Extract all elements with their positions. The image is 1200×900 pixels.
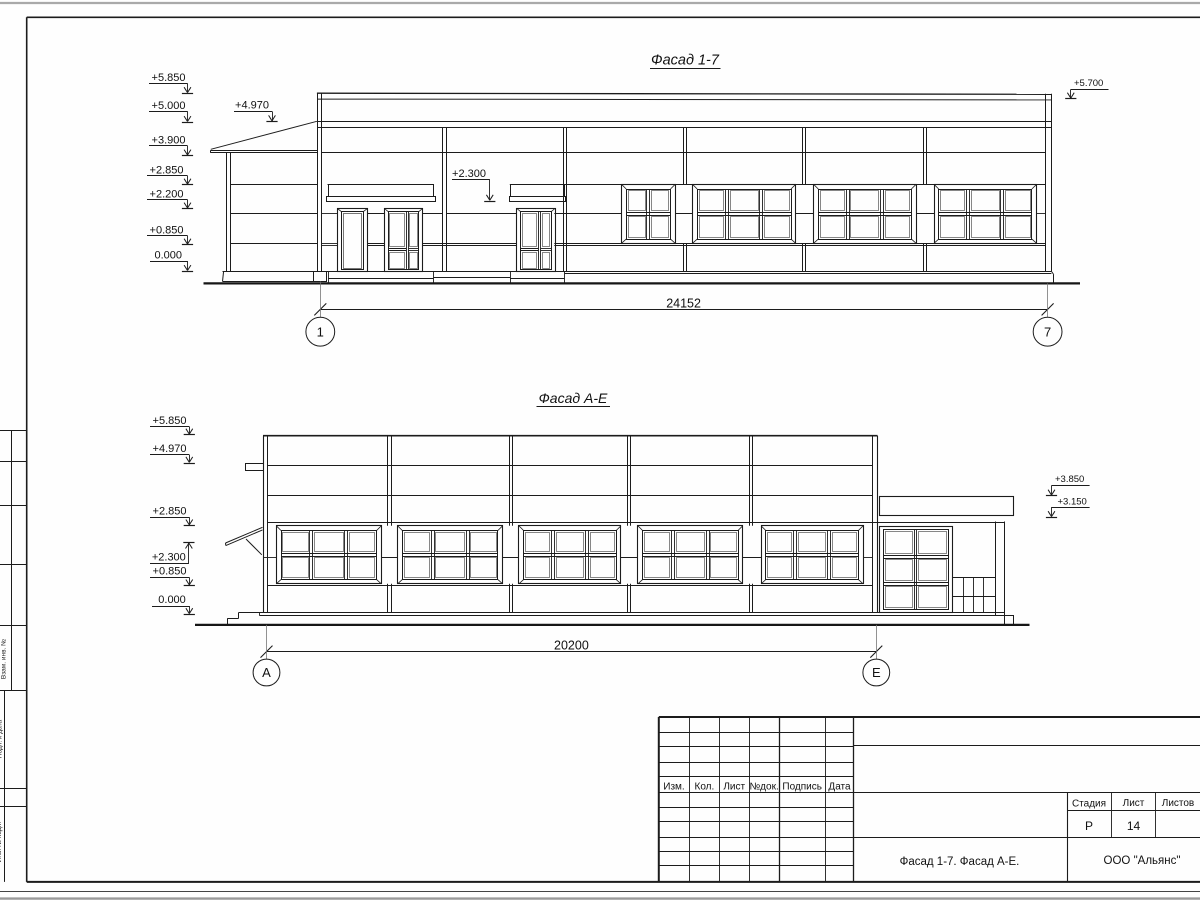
svg-text:14: 14: [1127, 819, 1141, 833]
svg-text:20200: 20200: [554, 638, 589, 652]
svg-text:Кол.: Кол.: [695, 782, 715, 793]
svg-text:Р: Р: [1085, 819, 1093, 833]
svg-text:Фасад А-Е: Фасад А-Е: [539, 390, 608, 406]
svg-text:+2.850: +2.850: [150, 164, 184, 176]
svg-text:Взам. инв. №: Взам. инв. №: [1, 639, 8, 679]
svg-text:+2.850: +2.850: [153, 505, 187, 517]
svg-text:0.000: 0.000: [158, 594, 186, 606]
svg-text:+5.700: +5.700: [1074, 78, 1103, 89]
svg-text:№док.: №док.: [749, 782, 778, 793]
svg-text:+0.850: +0.850: [153, 565, 187, 577]
svg-text:Лист: Лист: [1123, 798, 1145, 809]
svg-text:+0.850: +0.850: [150, 224, 184, 236]
svg-text:А: А: [262, 665, 271, 680]
svg-text:1: 1: [317, 324, 324, 339]
svg-text:ООО "Альянс": ООО "Альянс": [1104, 855, 1181, 867]
svg-text:+5.850: +5.850: [153, 415, 187, 427]
svg-text:Стадия: Стадия: [1072, 799, 1106, 810]
svg-text:+3.850: +3.850: [1055, 474, 1084, 485]
svg-text:Изм.: Изм.: [663, 782, 684, 793]
svg-text:+2.300: +2.300: [152, 551, 186, 563]
svg-text:Подп. и дата: Подп. и дата: [0, 719, 4, 758]
svg-text:0.000: 0.000: [154, 250, 182, 262]
svg-text:Фасад 1-7. Фасад А-Е.: Фасад 1-7. Фасад А-Е.: [900, 856, 1020, 868]
svg-text:+4.970: +4.970: [153, 443, 187, 455]
svg-text:+3.900: +3.900: [152, 134, 186, 146]
svg-text:Подпись: Подпись: [782, 782, 822, 793]
svg-text:24152: 24152: [666, 296, 701, 310]
svg-text:+4.970: +4.970: [235, 99, 269, 111]
svg-text:Инв. № подл.: Инв. № подл.: [0, 822, 3, 863]
svg-text:Листов: Листов: [1162, 798, 1195, 809]
svg-text:+5.000: +5.000: [152, 100, 186, 112]
svg-text:+3.150: +3.150: [1058, 497, 1087, 508]
svg-text:Фасад 1-7: Фасад 1-7: [651, 53, 720, 69]
svg-text:+2.200: +2.200: [150, 188, 184, 200]
svg-text:Е: Е: [872, 665, 881, 680]
svg-text:+5.850: +5.850: [152, 72, 186, 84]
svg-text:Лист: Лист: [723, 782, 745, 793]
svg-text:7: 7: [1044, 324, 1051, 339]
svg-text:Дата: Дата: [828, 782, 851, 793]
svg-text:+2.300: +2.300: [452, 168, 486, 180]
